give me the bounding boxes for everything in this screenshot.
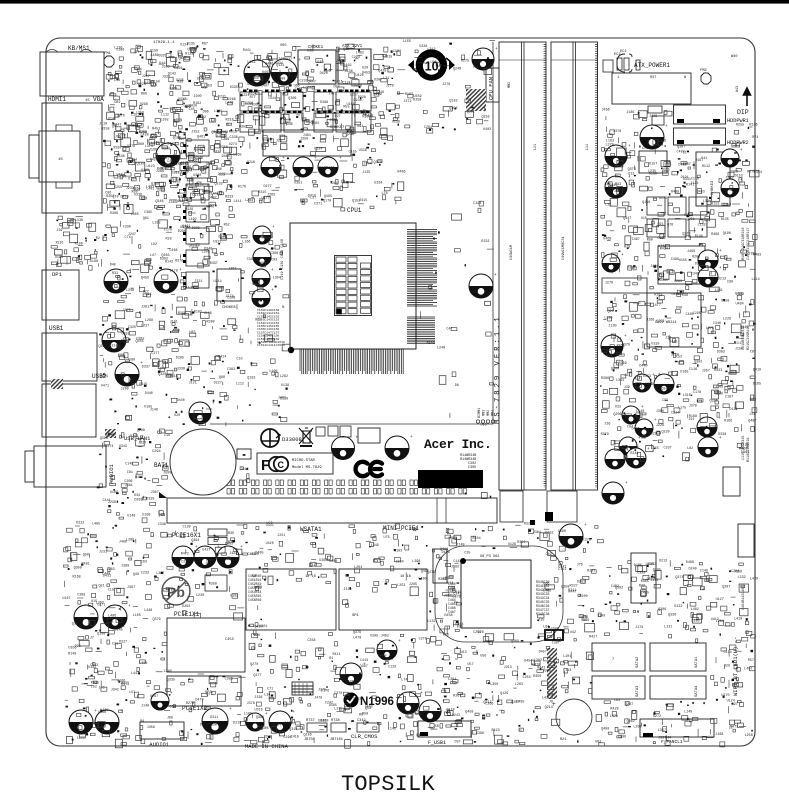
svg-text:J200: J200	[193, 95, 201, 99]
svg-text:RT37: RT37	[306, 719, 315, 723]
svg-text:SATA2: SATA2	[636, 656, 640, 668]
svg-text:Q185: Q185	[653, 569, 661, 573]
svg-text:C278: C278	[419, 638, 427, 642]
svg-text:C358: C358	[307, 639, 315, 643]
svg-text:+: +	[621, 253, 624, 258]
svg-text:C336: C336	[230, 136, 238, 140]
svg-text:R176: R176	[238, 186, 246, 190]
svg-text:R481: R481	[82, 563, 90, 567]
svg-text:U15: U15	[91, 600, 97, 604]
svg-text:U83: U83	[189, 331, 195, 335]
svg-text:D170: D170	[219, 236, 227, 240]
svg-text:D322: D322	[649, 432, 657, 436]
svg-text:+: +	[719, 266, 722, 271]
svg-text:R35: R35	[228, 532, 234, 536]
svg-text:L106: L106	[269, 370, 277, 374]
svg-text:D133: D133	[648, 563, 656, 567]
svg-text:L293: L293	[245, 199, 253, 203]
svg-text:U205: U205	[370, 634, 378, 638]
svg-text:U238: U238	[392, 121, 400, 125]
svg-text:D423: D423	[168, 143, 176, 147]
svg-text:+: +	[624, 334, 627, 339]
svg-text:D335: D335	[230, 86, 238, 90]
svg-text:J39: J39	[56, 229, 62, 233]
svg-text:J398: J398	[444, 594, 452, 598]
svg-text:C47: C47	[265, 261, 271, 265]
svg-text:Q447: Q447	[308, 81, 316, 85]
svg-text:J462: J462	[381, 634, 389, 638]
svg-text:R284: R284	[273, 724, 281, 728]
svg-text:J342: J342	[111, 688, 119, 692]
svg-text:U6_P3 U62: U6_P3 U62	[480, 555, 499, 559]
svg-text:R67: R67	[202, 43, 208, 47]
svg-text:U166: U166	[247, 83, 255, 87]
svg-text:Q309: Q309	[74, 567, 82, 571]
svg-text:R269: R269	[106, 435, 114, 439]
svg-text:Q497: Q497	[748, 420, 756, 424]
svg-text:J35: J35	[538, 619, 544, 623]
svg-text:D329: D329	[146, 497, 154, 501]
svg-text:R15: R15	[255, 318, 261, 322]
svg-text:Q394: Q394	[191, 539, 199, 543]
svg-text:Q206: Q206	[613, 413, 621, 417]
svg-text:Q497: Q497	[189, 244, 197, 248]
svg-text:+: +	[94, 709, 97, 714]
svg-text:U246: U246	[206, 205, 214, 209]
svg-text:J91: J91	[688, 418, 694, 422]
svg-text:Q287: Q287	[625, 703, 633, 707]
svg-text:J66: J66	[167, 717, 173, 721]
svg-text:Q343: Q343	[661, 387, 669, 391]
svg-text:L468: L468	[100, 709, 108, 713]
svg-text:L56: L56	[750, 413, 756, 417]
svg-text:U280: U280	[674, 280, 682, 284]
svg-text:D408: D408	[110, 212, 118, 216]
svg-text:D157: D157	[649, 163, 657, 167]
svg-text:L21: L21	[534, 144, 538, 150]
svg-text:C255: C255	[114, 186, 122, 190]
svg-text:CPU_FAN: CPU_FAN	[488, 77, 495, 100]
svg-text:+: +	[271, 288, 274, 293]
svg-text:U148: U148	[127, 514, 135, 518]
svg-text:L394: L394	[703, 200, 711, 204]
svg-text:L240: L240	[437, 347, 445, 351]
svg-text:U376: U376	[127, 145, 135, 149]
svg-text:R52: R52	[224, 224, 230, 228]
svg-text:Q187: Q187	[137, 162, 145, 166]
svg-text:Q13: Q13	[628, 172, 634, 176]
svg-text:C428: C428	[141, 133, 149, 137]
svg-text:L11: L11	[586, 144, 590, 150]
svg-text:C441: C441	[103, 499, 111, 503]
svg-text:U309: U309	[645, 383, 653, 387]
svg-text:L8: L8	[710, 278, 714, 282]
svg-text:D318: D318	[409, 528, 417, 532]
svg-text:D37: D37	[455, 741, 461, 745]
svg-text:MM2: MM2	[508, 82, 512, 88]
svg-text:U471: U471	[101, 384, 109, 388]
svg-text:Q461: Q461	[197, 136, 205, 140]
svg-text:U405: U405	[672, 293, 680, 297]
svg-text:U420: U420	[266, 542, 274, 546]
svg-text:J281: J281	[141, 305, 149, 309]
svg-text:18 16: 18 16	[305, 575, 316, 579]
svg-text:C35: C35	[464, 552, 470, 556]
svg-text:C179: C179	[691, 178, 699, 182]
svg-text:C398: C398	[77, 594, 85, 598]
svg-text:Q367: Q367	[360, 665, 368, 669]
svg-text:J227: J227	[138, 442, 146, 446]
svg-text:D420: D420	[320, 72, 328, 76]
svg-text:Q379: Q379	[374, 161, 382, 165]
svg-text:D328: D328	[354, 85, 362, 89]
svg-text:U127: U127	[716, 598, 724, 602]
svg-text:L379: L379	[606, 143, 614, 147]
svg-text:R270: R270	[186, 702, 194, 706]
svg-text:Q183: Q183	[247, 377, 255, 381]
svg-text:U124: U124	[727, 699, 735, 703]
svg-text:Q458: Q458	[465, 711, 473, 715]
svg-text:D302: D302	[198, 116, 206, 120]
svg-text:J130: J130	[608, 324, 616, 328]
svg-text:CHOKE8: CHOKE8	[222, 306, 236, 310]
svg-text:J349: J349	[543, 670, 551, 674]
svg-text:D403: D403	[225, 542, 233, 546]
svg-text:D199: D199	[474, 61, 482, 65]
svg-text:C395: C395	[144, 211, 152, 215]
svg-text:J299: J299	[121, 387, 129, 391]
svg-text:L258: L258	[745, 734, 753, 738]
svg-text:J458: J458	[147, 726, 155, 730]
svg-text:Q30: Q30	[72, 622, 78, 626]
svg-text:J81: J81	[624, 374, 630, 378]
svg-text:L47: L47	[150, 254, 156, 258]
svg-text:U272: U272	[653, 715, 661, 719]
svg-text:C294: C294	[152, 450, 161, 454]
svg-text:D26: D26	[254, 634, 260, 638]
svg-text:C168: C168	[252, 279, 260, 283]
svg-text:+: +	[170, 691, 173, 696]
svg-text:R429: R429	[610, 707, 618, 711]
svg-text:D34: D34	[134, 494, 140, 498]
svg-text:Q129: Q129	[500, 692, 508, 696]
svg-text:R112: R112	[702, 165, 710, 169]
svg-text:C43: C43	[114, 79, 120, 83]
svg-text:Q306: Q306	[288, 97, 296, 101]
svg-text:Q397: Q397	[677, 145, 685, 149]
svg-text:C187: C187	[725, 396, 733, 400]
svg-text:U108: U108	[142, 514, 150, 518]
svg-text:D198: D198	[90, 260, 98, 264]
svg-text:R472: R472	[181, 553, 189, 557]
svg-text:Q498: Q498	[601, 728, 609, 732]
svg-text:Q379: Q379	[724, 189, 732, 193]
svg-text:C480: C480	[686, 313, 694, 317]
svg-text:L357: L357	[658, 729, 666, 733]
svg-text:L114: L114	[129, 158, 137, 162]
svg-text:R327: R327	[570, 584, 578, 588]
svg-text:C255: C255	[523, 676, 531, 680]
svg-text:Q495: Q495	[324, 195, 332, 199]
svg-text:U442: U442	[247, 61, 255, 65]
svg-text:L296: L296	[126, 539, 134, 543]
svg-text:J9: J9	[549, 701, 553, 705]
svg-text:SATA4: SATA4	[695, 685, 699, 697]
svg-text:L217: L217	[350, 94, 358, 98]
svg-text:C116: C116	[689, 368, 697, 372]
svg-text:U162: U162	[230, 594, 238, 598]
svg-text:J140: J140	[141, 705, 149, 709]
svg-text:Q44: Q44	[150, 137, 156, 141]
svg-text:PCIE16X1: PCIE16X1	[172, 532, 201, 539]
svg-text:J166: J166	[149, 148, 157, 152]
svg-text:D94: D94	[334, 86, 340, 90]
svg-text:L482: L482	[691, 608, 699, 612]
svg-text:CPU1: CPU1	[347, 207, 362, 214]
svg-text:C52: C52	[676, 355, 682, 359]
svg-text:J497: J497	[695, 159, 703, 163]
svg-text:L339: L339	[174, 67, 182, 71]
svg-text:C294: C294	[352, 56, 360, 60]
svg-text:D454: D454	[524, 659, 532, 663]
svg-text:C11: C11	[735, 342, 741, 346]
svg-text:J266: J266	[156, 170, 164, 174]
svg-text:C371: C371	[314, 203, 322, 207]
svg-text:U126: U126	[508, 543, 516, 547]
svg-text:Q374: Q374	[675, 576, 683, 580]
svg-text:J36: J36	[604, 423, 610, 427]
svg-text:L151: L151	[131, 114, 139, 118]
svg-text:Q463: Q463	[262, 71, 270, 75]
svg-text:+: +	[271, 268, 274, 273]
svg-text:R447: R447	[568, 590, 576, 594]
svg-text:R468: R468	[711, 233, 719, 237]
svg-text:Q259: Q259	[561, 585, 569, 589]
svg-text:J14: J14	[565, 669, 571, 673]
svg-text:L175: L175	[678, 407, 686, 411]
svg-text:L340: L340	[164, 670, 172, 674]
svg-text:L356: L356	[206, 560, 214, 564]
svg-text:_AUDIO1: _AUDIO1	[145, 741, 170, 748]
svg-text:J238: J238	[254, 696, 262, 700]
svg-text:C481R442C483: C481R442C483	[742, 586, 746, 610]
svg-text:J276: J276	[442, 83, 450, 87]
svg-text:D269: D269	[184, 168, 192, 172]
svg-text:L477: L477	[653, 304, 661, 308]
svg-text:Q359: Q359	[723, 203, 731, 207]
svg-text:D121: D121	[729, 408, 737, 412]
svg-text:CLR_CMOS: CLR_CMOS	[351, 733, 378, 740]
svg-text:J183: J183	[451, 566, 459, 570]
svg-text:R486: R486	[397, 170, 405, 174]
svg-text:R28: R28	[166, 238, 172, 242]
svg-text:L223: L223	[77, 737, 85, 741]
svg-text:Q182: Q182	[449, 100, 457, 104]
svg-text:R203: R203	[692, 256, 700, 260]
svg-text:C453: C453	[225, 638, 234, 642]
svg-text:C242: C242	[325, 702, 333, 706]
svg-text:RT38: RT38	[331, 719, 340, 723]
svg-text:C71: C71	[267, 687, 273, 691]
svg-text:Q78: Q78	[667, 224, 673, 228]
svg-text:L394: L394	[448, 678, 456, 682]
svg-text:R149: R149	[695, 235, 703, 239]
svg-text:L253: L253	[397, 584, 405, 588]
svg-text:U66: U66	[294, 84, 300, 88]
svg-text:J267: J267	[702, 370, 710, 374]
svg-text:L289: L289	[221, 138, 229, 142]
svg-text:U62: U62	[595, 740, 601, 744]
svg-text:D218: D218	[233, 721, 241, 725]
svg-text:L71: L71	[151, 142, 157, 146]
svg-text:C295: C295	[693, 312, 701, 316]
svg-text:L324: L324	[547, 694, 555, 698]
svg-text:D290: D290	[178, 230, 186, 234]
svg-text:U331: U331	[171, 172, 179, 176]
svg-text:C1511C1411C1511: C1511C1411C1511	[257, 343, 285, 347]
svg-text:D307: D307	[647, 578, 655, 582]
svg-text:U165: U165	[680, 370, 688, 374]
svg-text:L57: L57	[129, 691, 135, 695]
svg-text:D393: D393	[717, 350, 725, 354]
svg-text:L350: L350	[490, 683, 498, 687]
svg-text:C225: C225	[181, 560, 189, 564]
svg-text:C93: C93	[271, 258, 277, 262]
svg-text:L214: L214	[752, 278, 760, 282]
svg-text:C149: C149	[125, 462, 133, 466]
svg-text:J177: J177	[194, 158, 202, 162]
svg-text:J149: J149	[150, 408, 158, 412]
svg-text:C468: C468	[169, 249, 177, 253]
svg-text:J483: J483	[697, 191, 705, 195]
svg-text:D118: D118	[200, 723, 208, 727]
svg-text:L338: L338	[117, 155, 125, 159]
svg-text:D256: D256	[121, 339, 129, 343]
svg-text:U139: U139	[281, 384, 289, 388]
svg-text:R427: R427	[589, 635, 597, 639]
svg-text:C339: C339	[123, 225, 131, 229]
svg-text:+: +	[647, 447, 650, 452]
svg-text:C251: C251	[473, 631, 481, 635]
svg-text:J229: J229	[656, 424, 664, 428]
svg-text:L292: L292	[280, 375, 288, 379]
svg-text:D309: D309	[192, 227, 200, 231]
svg-text:Q330: Q330	[209, 723, 217, 727]
svg-text:L74: L74	[401, 678, 407, 682]
svg-text:L82: L82	[687, 447, 693, 451]
svg-text:L102: L102	[152, 222, 160, 226]
svg-text:L132: L132	[427, 620, 435, 624]
svg-text:L441: L441	[715, 289, 723, 293]
svg-text:JBT101: JBT101	[330, 738, 343, 742]
svg-text:J475: J475	[336, 60, 344, 64]
svg-text:U310: U310	[651, 343, 659, 347]
svg-text:Q305: Q305	[211, 131, 219, 135]
svg-text:L382: L382	[534, 659, 542, 663]
svg-text:L82: L82	[151, 243, 157, 247]
svg-text:U267: U267	[150, 695, 158, 699]
svg-text:L248: L248	[126, 289, 134, 293]
svg-text:+: +	[298, 58, 301, 63]
svg-text:U57: U57	[467, 663, 473, 667]
svg-text:C240: C240	[470, 291, 478, 295]
svg-text:L21: L21	[605, 204, 611, 208]
svg-text:MICRO-STAR: MICRO-STAR	[292, 459, 316, 463]
svg-text:D145: D145	[115, 628, 123, 632]
svg-text:L237: L237	[141, 325, 149, 329]
svg-text:D184: D184	[128, 178, 136, 182]
svg-text:U200: U200	[329, 560, 337, 564]
svg-text:D329: D329	[437, 57, 445, 61]
svg-text:J231: J231	[99, 551, 107, 555]
svg-text:L485: L485	[131, 213, 139, 217]
svg-text:C337: C337	[664, 447, 672, 451]
svg-text:D277: D277	[264, 185, 272, 189]
svg-text:C497: C497	[632, 238, 640, 242]
svg-text:D367: D367	[683, 163, 691, 167]
svg-text:L263: L263	[515, 683, 523, 687]
svg-text:L479: L479	[353, 636, 361, 640]
svg-text:Model MS-7829: Model MS-7829	[292, 465, 322, 470]
svg-text:15: 15	[85, 99, 90, 103]
svg-text:J390: J390	[162, 148, 170, 152]
svg-text:+: +	[212, 401, 215, 406]
svg-text:L392: L392	[161, 119, 169, 123]
svg-text:Q19: Q19	[343, 48, 349, 52]
svg-text:C305: C305	[468, 466, 476, 470]
svg-text:C124: C124	[724, 651, 732, 655]
svg-text:L237: L237	[145, 81, 153, 85]
svg-text:R437: R437	[210, 262, 218, 266]
svg-text:R57: R57	[748, 659, 754, 663]
svg-text:C89: C89	[727, 281, 733, 285]
svg-text:Q201: Q201	[687, 218, 695, 222]
svg-text:R466: R466	[739, 448, 747, 452]
svg-text:Q214: Q214	[545, 706, 553, 710]
svg-text:C398: C398	[476, 732, 484, 736]
svg-text:+: +	[625, 481, 628, 486]
svg-text:SATA3: SATA3	[636, 685, 640, 697]
svg-text:C178: C178	[693, 391, 701, 395]
svg-text:Q78: Q78	[112, 196, 118, 200]
svg-text:U124: U124	[314, 148, 322, 152]
svg-text:L497: L497	[744, 668, 752, 672]
svg-text:C314: C314	[671, 411, 679, 415]
svg-text:U20: U20	[174, 414, 180, 418]
svg-text:U358: U358	[721, 299, 729, 303]
svg-text:C413: C413	[360, 659, 368, 663]
svg-text:Q417: Q417	[421, 570, 429, 574]
svg-text:D39: D39	[676, 306, 682, 310]
svg-text:R404: R404	[473, 537, 481, 541]
svg-text:R434: R434	[275, 62, 283, 66]
svg-text:Q233: Q233	[215, 182, 223, 186]
svg-text:SATA1: SATA1	[695, 656, 699, 668]
svg-text:EC2: EC2	[620, 50, 626, 54]
svg-text:L290: L290	[156, 572, 164, 576]
svg-text:L311: L311	[616, 379, 624, 383]
svg-text:J150: J150	[735, 347, 743, 351]
svg-text:L2: L2	[729, 727, 733, 731]
svg-text:L253: L253	[204, 85, 212, 89]
svg-text:C348: C348	[691, 272, 699, 276]
svg-text:L105: L105	[133, 614, 141, 618]
svg-text:U216: U216	[247, 161, 255, 165]
svg-text:C233: C233	[90, 664, 98, 668]
svg-text:L268: L268	[145, 319, 153, 323]
svg-text:D337: D337	[142, 366, 150, 370]
svg-text:J339: J339	[177, 368, 185, 372]
